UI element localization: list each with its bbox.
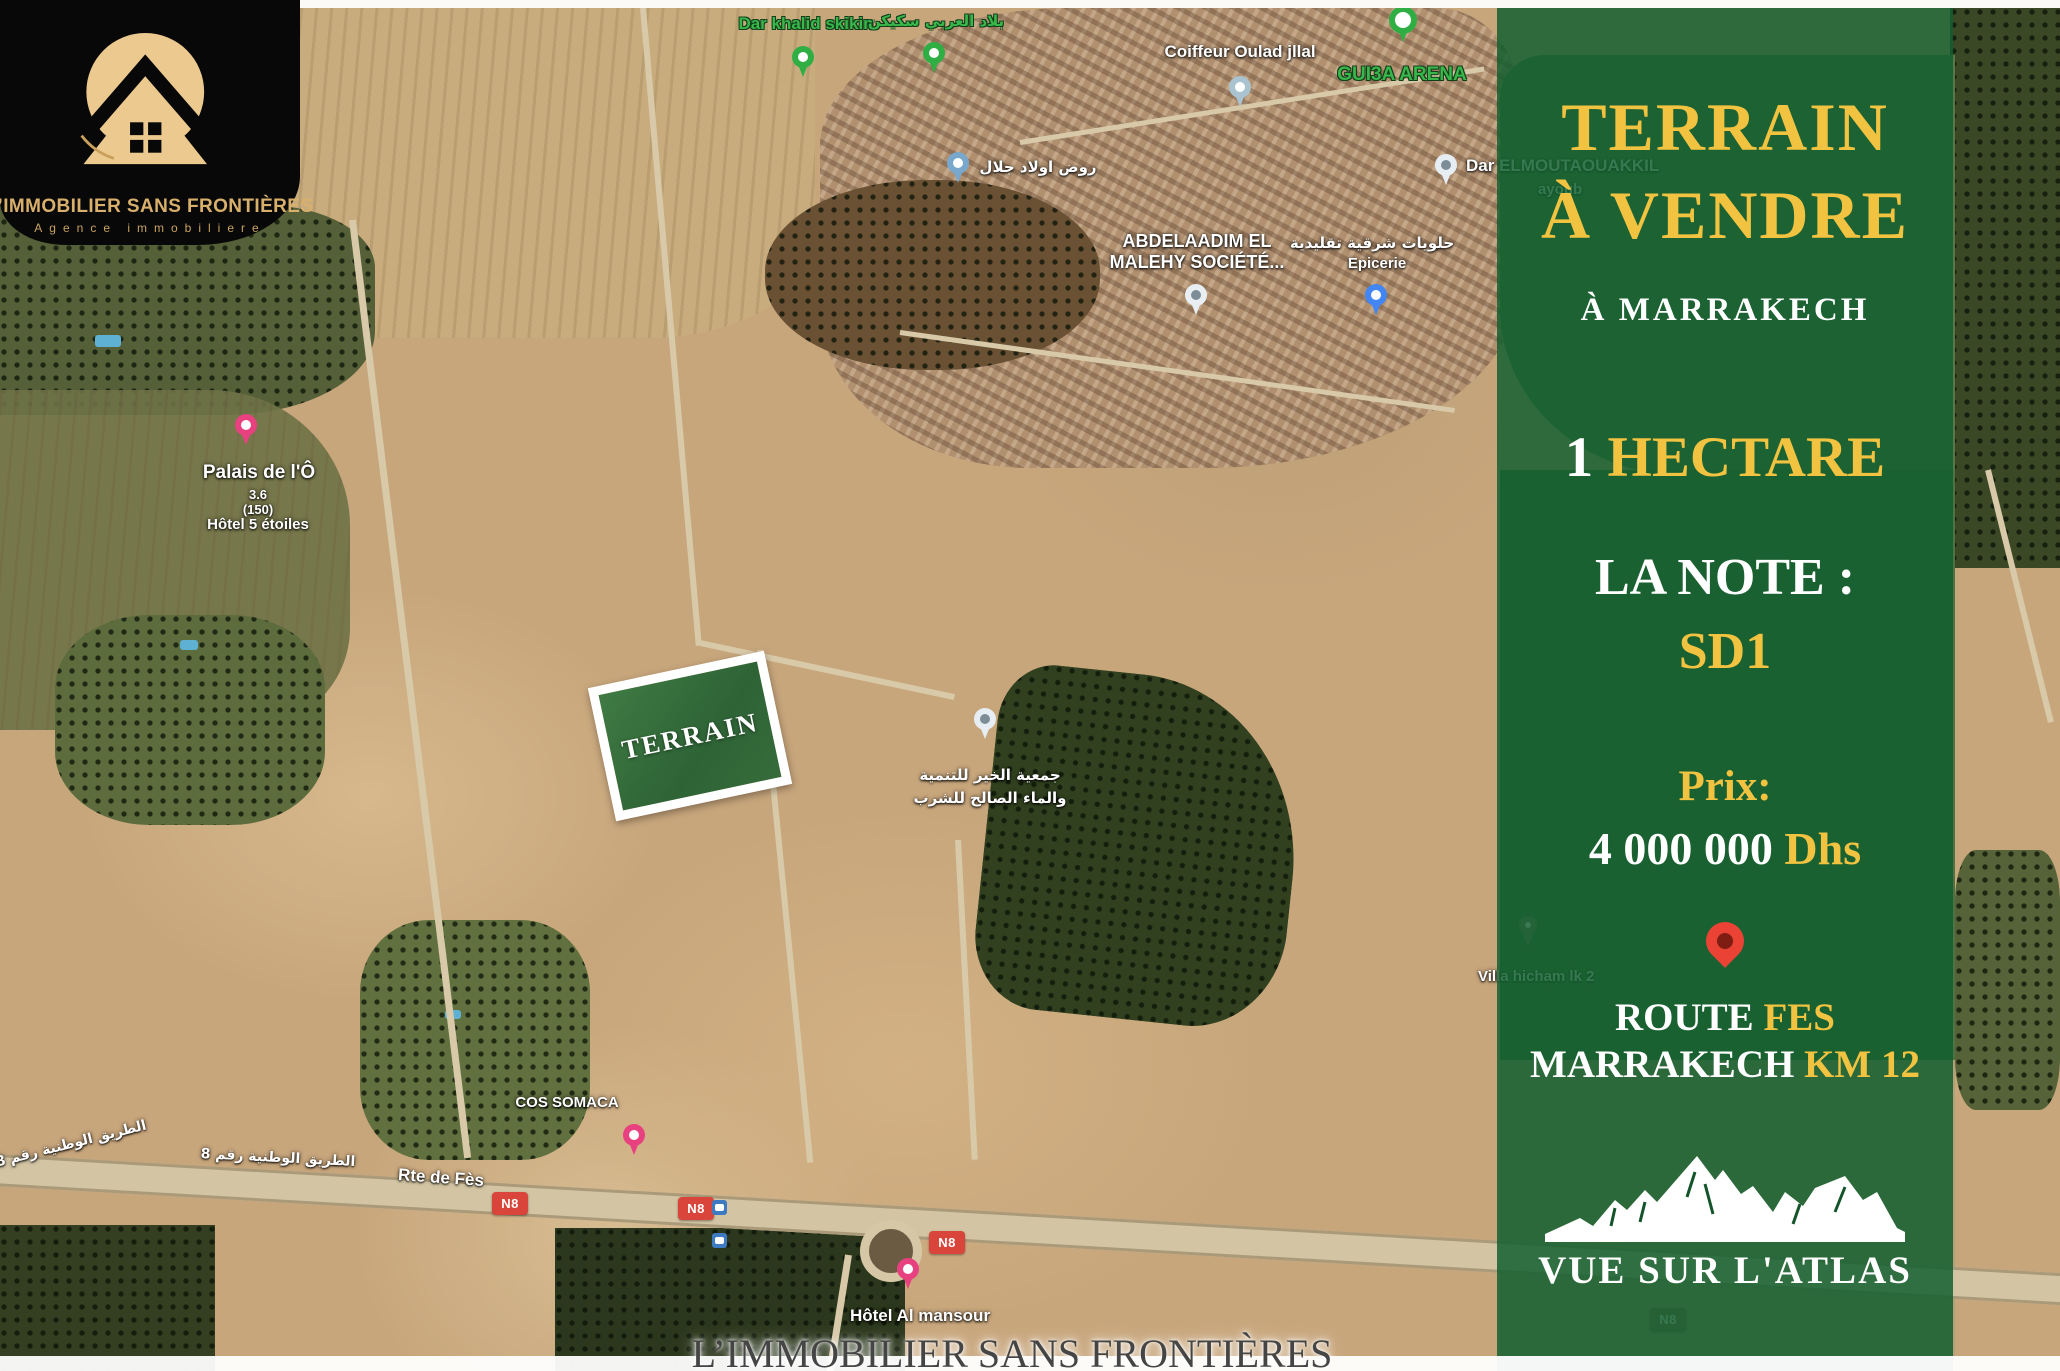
poi-label-rawd-oulad-jlal: روض اولاد جلال [979, 158, 1096, 176]
agency-logo: L’IMMOBILIER SANS FRONTIÈRES Agence immo… [0, 0, 300, 245]
poi-label-palais-reviews: (150) [243, 502, 273, 517]
panel-route-word3: MARRAKECH [1530, 1043, 1794, 1086]
flower-pin-icon [923, 42, 945, 64]
panel-route-word2: FES [1763, 996, 1835, 1039]
poi-label-palais-rating: 3.6 [249, 487, 267, 502]
agency-logo-subtitle: Agence immobiliere [34, 221, 265, 235]
panel-price-amount: 4 000 000 [1589, 823, 1773, 874]
school-pin-icon [947, 152, 969, 174]
panel-title-line1: TERRAIN [1561, 88, 1889, 167]
top-border-strip [0, 0, 2060, 8]
panel-route-word4: KM 12 [1804, 1043, 1920, 1086]
terrain-plot-outline: TERRAIN [588, 651, 792, 821]
poi-label-association-1: جمعية الخير للتنمية [919, 766, 1060, 784]
location-pin-icon [1698, 914, 1752, 968]
road-segment [955, 840, 978, 1160]
bus-stop-icon [712, 1200, 727, 1215]
panel-route-word1: ROUTE [1615, 996, 1754, 1039]
poi-label-abdelaadim-2: MALEHY SOCIÉTÉ... [1110, 252, 1285, 273]
orchard-patch [968, 660, 1312, 1036]
n8-route-shield: N8 [929, 1231, 965, 1254]
generic-pin-icon [1185, 284, 1207, 306]
poi-label-epicerie: Epicerie [1348, 255, 1406, 272]
flower-pin-icon [792, 46, 814, 68]
poi-label-guia-arena: GUI3A ARENA [1337, 64, 1467, 86]
panel-route-line1: ROUTE FES [1615, 995, 1835, 1040]
panel-area: 1 HECTARE [1565, 425, 1885, 490]
panel-city: À MARRAKECH [1581, 292, 1870, 329]
poi-label-abdelaadim-1: ABDELAADIM EL [1123, 231, 1272, 252]
panel-title-line2: À VENDRE [1541, 176, 1909, 255]
panel-note-value: SD1 [1679, 622, 1771, 681]
panel-price-label: Prix: [1678, 762, 1771, 811]
swimming-pool [180, 640, 198, 650]
poi-label-halawiyat: حلويات شرقية تقليدية [1290, 234, 1454, 252]
right-grove-patch [1955, 850, 2060, 1110]
agency-logo-icon [55, 10, 245, 170]
panel-price-currency: Dhs [1784, 823, 1861, 874]
n8-route-shield: N8 [678, 1197, 714, 1220]
poi-label-coiffeur: Coiffeur Oulad jllal [1164, 42, 1315, 62]
terrain-plot-label: TERRAIN [619, 706, 761, 765]
poi-label-association-2: والماء الصالح للشرب [914, 789, 1067, 807]
flyer-canvas: TERRAIN Dar khalid skikin بلاد العربي سك… [0, 0, 2060, 1371]
person-pin-icon [1389, 6, 1417, 34]
dark-grove-patch [765, 180, 1100, 370]
swimming-pool [95, 335, 121, 347]
panel-area-word: HECTARE [1608, 426, 1886, 489]
hotel-pin-icon [235, 414, 257, 436]
generic-pin-icon [1229, 76, 1251, 98]
bus-stop-icon [712, 1233, 727, 1248]
panel-route-line2: MARRAKECH KM 12 [1530, 1042, 1920, 1087]
offer-panel: TERRAIN À VENDRE À MARRAKECH 1 HECTARE L… [1497, 8, 1953, 1371]
restaurant-pin-icon [623, 1124, 645, 1146]
n8-route-shield: N8 [492, 1192, 528, 1215]
panel-price: 4 000 000 Dhs [1589, 822, 1861, 875]
poi-label-blad-el-arabi: بلاد العربي سكيكن [868, 12, 1004, 30]
panel-note-label: LA NOTE : [1595, 548, 1855, 607]
poi-label-palais-name: Palais de l'Ô [203, 462, 315, 484]
poi-label-cos-somaca: COS SOMACA [515, 1094, 618, 1111]
hotel-pin-icon [897, 1258, 919, 1280]
atlas-mountains-icon [1545, 1142, 1905, 1254]
panel-view-caption: VUE SUR L'ATLAS [1538, 1248, 1912, 1293]
generic-pin-icon [974, 708, 996, 730]
orchard-patch [0, 1225, 215, 1371]
footer-agency-name: L’IMMOBILIER SANS FRONTIÈRES [692, 1330, 1333, 1371]
panel-area-number: 1 [1565, 426, 1594, 489]
cos-grove-patch [360, 920, 590, 1160]
poi-label-hotel-al-mansour: Hôtel Al mansour [850, 1306, 990, 1326]
right-grove-patch [1950, 8, 2060, 568]
shopping-cart-pin-icon [1365, 284, 1387, 306]
agency-logo-title: L’IMMOBILIER SANS FRONTIÈRES [0, 196, 313, 218]
poi-label-dar-khalid-skikin: Dar khalid skikin [738, 14, 873, 34]
poi-label-palais-category: Hôtel 5 étoiles [207, 516, 309, 533]
generic-pin-icon [1435, 154, 1457, 176]
